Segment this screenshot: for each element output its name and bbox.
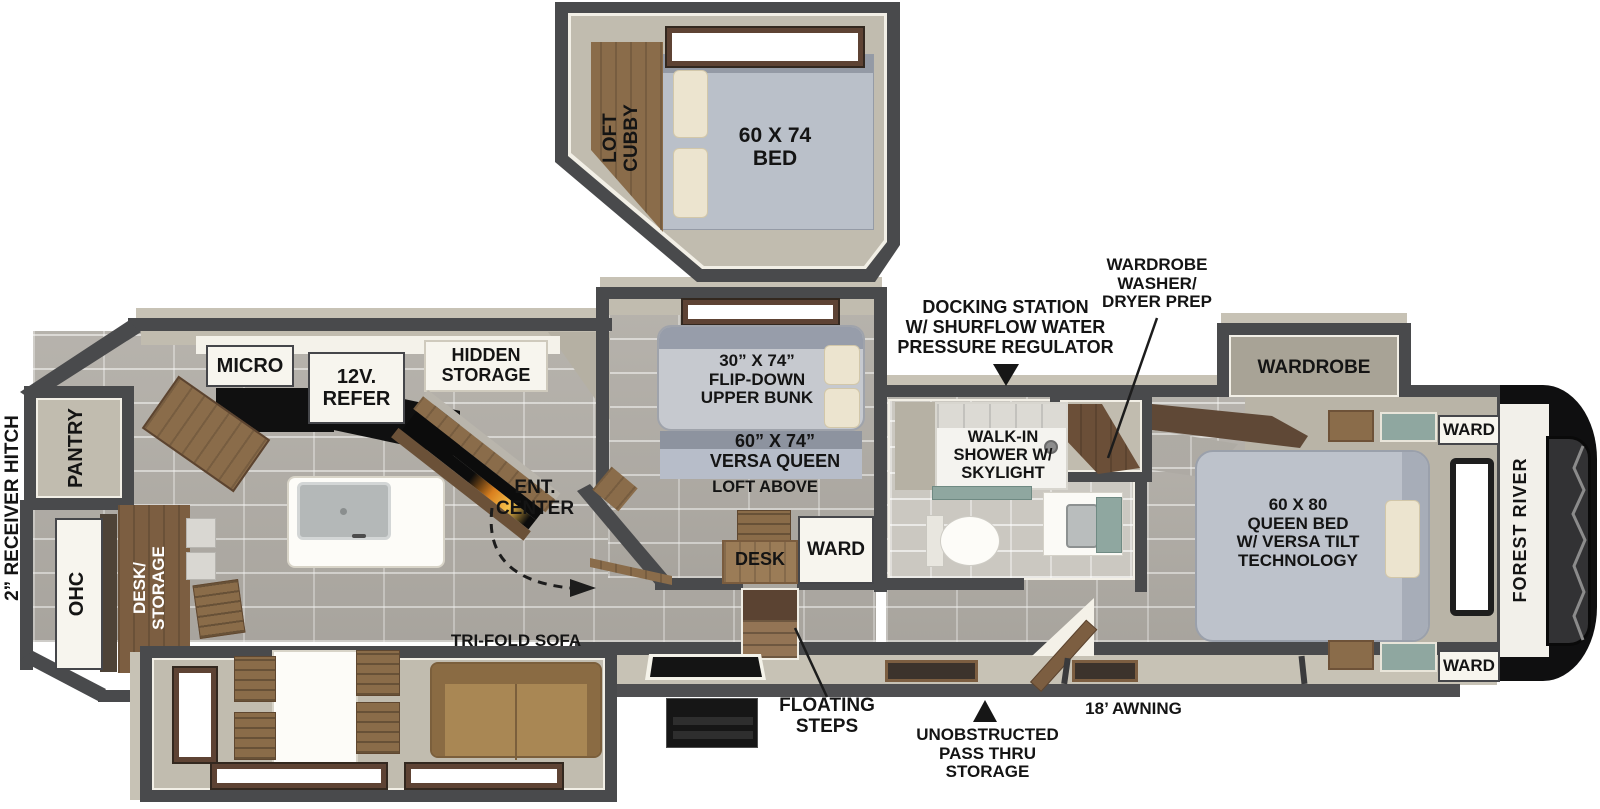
dinette-bottom-window-1: [212, 764, 386, 788]
steps-lower: [743, 620, 797, 658]
queen-pillow: [1385, 500, 1420, 578]
label-line: QUEEN BED: [1208, 515, 1388, 534]
shower-shelf-teal: [932, 486, 1032, 500]
label-line: UPPER BUNK: [672, 389, 842, 408]
bedroom-cabinet-bottom: [1328, 640, 1374, 670]
wall-bunk-top: [596, 287, 886, 299]
label-line: WARD: [807, 540, 865, 561]
queen-bed-label: 60 X 80 QUEEN BED W/ VERSA TILT TECHNOLO…: [1208, 496, 1388, 571]
bedroom-cabinet-top: [1328, 410, 1374, 442]
steps-upper: [743, 590, 797, 620]
floating-steps: [743, 590, 797, 658]
upper-bunk-label: 30” X 74” FLIP-DOWN UPPER BUNK: [672, 352, 842, 408]
dinette-chair-3: [356, 650, 400, 696]
dinette-table: [272, 650, 358, 764]
wall-bedslide-top: [1217, 323, 1411, 335]
dinette-side-window: [174, 668, 216, 762]
bunk-desk-label: DESK: [722, 550, 798, 570]
bunk-window: [683, 300, 838, 324]
pass-thru-arrow-up: [973, 700, 997, 722]
micro-cabinet: MICRO: [206, 345, 294, 387]
loft-window: [667, 28, 863, 66]
label-line: LOFT ABOVE: [690, 478, 840, 496]
label-line: FOREST RIVER: [1511, 410, 1531, 650]
bedroom-teal-top: [1380, 412, 1437, 442]
entry-step-outside: [666, 698, 758, 748]
pass-thru-door-1: [885, 660, 978, 682]
rear-desk-chair: [192, 579, 245, 639]
label-line: VERSA QUEEN: [675, 452, 875, 472]
label-line: DESK: [722, 550, 798, 570]
forest-river-label: FOREST RIVER: [1511, 410, 1537, 650]
label-line: SHOWER W/: [928, 446, 1078, 464]
sofa-back: [432, 664, 600, 684]
label-line: WARDROBE: [1082, 256, 1232, 275]
label-line: STEPS: [768, 717, 886, 738]
label-line: TRI-FOLD SOFA: [420, 632, 612, 651]
label-line: OHC: [66, 534, 88, 654]
micro-label: MICRO: [217, 355, 284, 377]
versa-queen-label: 60” X 74” VERSA QUEEN: [675, 432, 875, 472]
label-line: REFER: [323, 388, 391, 410]
pass-thru-callout: UNOBSTRUCTED PASS THRU STORAGE: [905, 726, 1070, 782]
floating-steps-callout: FLOATING STEPS: [768, 696, 886, 738]
hidden-storage-cabinet: HIDDEN STORAGE: [424, 340, 548, 392]
desk-paper-2: [186, 552, 216, 580]
windshield: [1546, 436, 1591, 646]
sofa-seat-divider: [515, 684, 517, 760]
walk-in-shower-label: WALK-IN SHOWER W/ SKYLIGHT: [928, 428, 1078, 482]
label-line: HIDDEN: [451, 346, 520, 366]
label-line: CENTER: [470, 499, 600, 520]
step-tread-2: [673, 731, 753, 739]
tri-fold-sofa: [430, 662, 602, 758]
label-line: WASHER/: [1082, 275, 1232, 294]
label-line: STORAGE: [905, 763, 1070, 782]
bedroom-ward-top: WARD: [1438, 415, 1500, 445]
label-line: PRESSURE REGULATOR: [878, 338, 1133, 358]
wall-front-top: [1399, 385, 1509, 397]
awning-label: 18’ AWNING: [1066, 700, 1201, 719]
desk-paper-1: [186, 518, 216, 548]
label-line: W/ VERSA TILT: [1208, 533, 1388, 552]
exterior-strip-kitchen: [136, 308, 606, 318]
pass-thru-door-2: [1072, 660, 1138, 682]
step-tread-1: [673, 717, 753, 725]
label-line: 60” X 74”: [675, 432, 875, 452]
exterior-strip-dock: [880, 375, 1220, 385]
docking-arrow-down: [993, 364, 1019, 386]
label-line: 2” RECEIVER HITCH: [3, 383, 24, 633]
pantry-label: PANTRY: [65, 378, 91, 518]
label-line: STORAGE: [442, 366, 531, 386]
dinette-chair-2: [234, 712, 276, 760]
label-line: TECHNOLOGY: [1208, 552, 1388, 571]
receiver-hitch-label: 2” RECEIVER HITCH: [3, 383, 29, 633]
exterior-strip-bedslide: [1221, 313, 1407, 323]
sink-drain: [340, 508, 347, 515]
wall-kitchen-top: [128, 318, 612, 331]
label-line: WARD: [1443, 421, 1495, 440]
skylight-tiles: [937, 404, 1066, 428]
wd-prep-callout: WARDROBE WASHER/ DRYER PREP: [1082, 256, 1232, 312]
loft-bed-label: 60 X 74 BED: [695, 124, 855, 170]
label-line: ENT.: [470, 478, 600, 499]
floorplan-canvas: LOFT CUBBY 60 X 74 BED PANTRY 2” RECEIVE…: [0, 0, 1600, 809]
label-line: FLIP-DOWN: [672, 371, 842, 390]
label-line: DRYER PREP: [1082, 293, 1232, 312]
toilet-bowl: [940, 516, 1000, 566]
label-line: UNOBSTRUCTED: [905, 726, 1070, 745]
label-line: PANTRY: [65, 378, 87, 518]
ent-center-label: ENT. CENTER: [470, 478, 600, 520]
wall-bunk-left: [596, 287, 609, 497]
sink-faucet-icon: [352, 534, 366, 538]
label-line: WALK-IN: [928, 428, 1078, 446]
refer-cabinet: 12V. REFER: [308, 352, 405, 424]
label-line: 30” X 74”: [672, 352, 842, 371]
sofa-arm-right: [587, 664, 600, 756]
wall-docking: [874, 385, 1224, 397]
dinette-chair-4: [356, 702, 400, 754]
label-line: WARD: [1443, 657, 1495, 676]
ohc-label: OHC: [66, 534, 92, 654]
bunk-ward-cabinet: WARD: [798, 516, 874, 584]
tri-fold-sofa-label: TRI-FOLD SOFA: [420, 632, 612, 651]
label-line: 12V.: [337, 366, 376, 388]
label-line: PASS THRU: [905, 745, 1070, 764]
front-window: [1450, 458, 1494, 616]
wall-bath-right: [1135, 480, 1147, 592]
bedroom-ward-bottom: WARD: [1438, 650, 1500, 682]
loft-cubby-label: LOFT CUBBY: [601, 63, 649, 213]
label-line: WARDROBE: [1229, 358, 1399, 379]
label-line: 60 X 80: [1208, 496, 1388, 515]
dinette-bottom-window-2: [406, 764, 562, 788]
vanity-teal-face: [1096, 497, 1122, 553]
label-line: LOFT: [601, 63, 622, 213]
label-line: FLOATING: [768, 696, 886, 717]
loft-above-label: LOFT ABOVE: [690, 478, 840, 496]
label-line: SKYLIGHT: [928, 464, 1078, 482]
bedroom-wardrobe-label: WARDROBE: [1229, 358, 1399, 379]
label-line: 18’ AWNING: [1066, 700, 1201, 719]
label-line: W/ SHURFLOW WATER: [878, 318, 1133, 338]
label-line: CUBBY: [622, 63, 643, 213]
label-line: 60 X 74: [695, 124, 855, 147]
dinette-chair-1: [234, 656, 276, 702]
sofa-arm-left: [432, 664, 445, 756]
wall-bath-bottom: [874, 578, 1024, 590]
bedroom-teal-bottom: [1380, 642, 1437, 672]
dinette-slide-exterior: [130, 652, 140, 800]
vanity-sink: [1066, 504, 1098, 548]
label-line: BED: [695, 147, 855, 170]
sidewall-band-edge: [575, 684, 1460, 697]
loft-room: LOFT CUBBY 60 X 74 BED: [555, 2, 900, 284]
